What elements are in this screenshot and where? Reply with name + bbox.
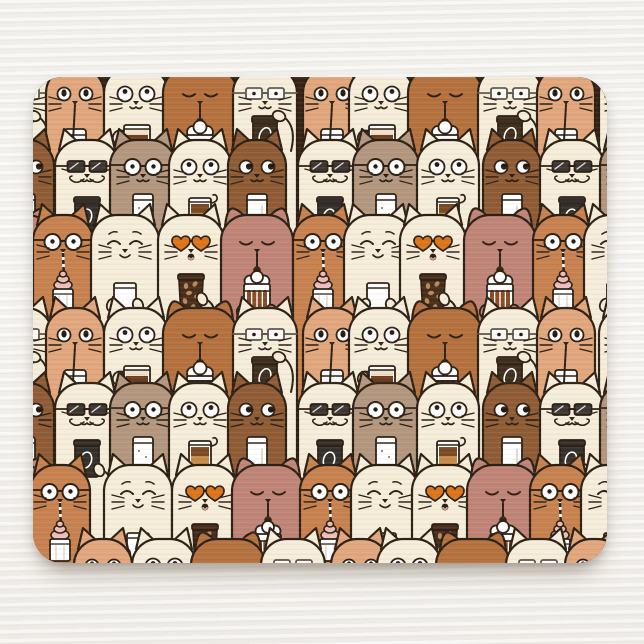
desk-background (0, 0, 644, 644)
mousepad (33, 77, 607, 563)
cat-pattern-illustration (33, 77, 607, 563)
